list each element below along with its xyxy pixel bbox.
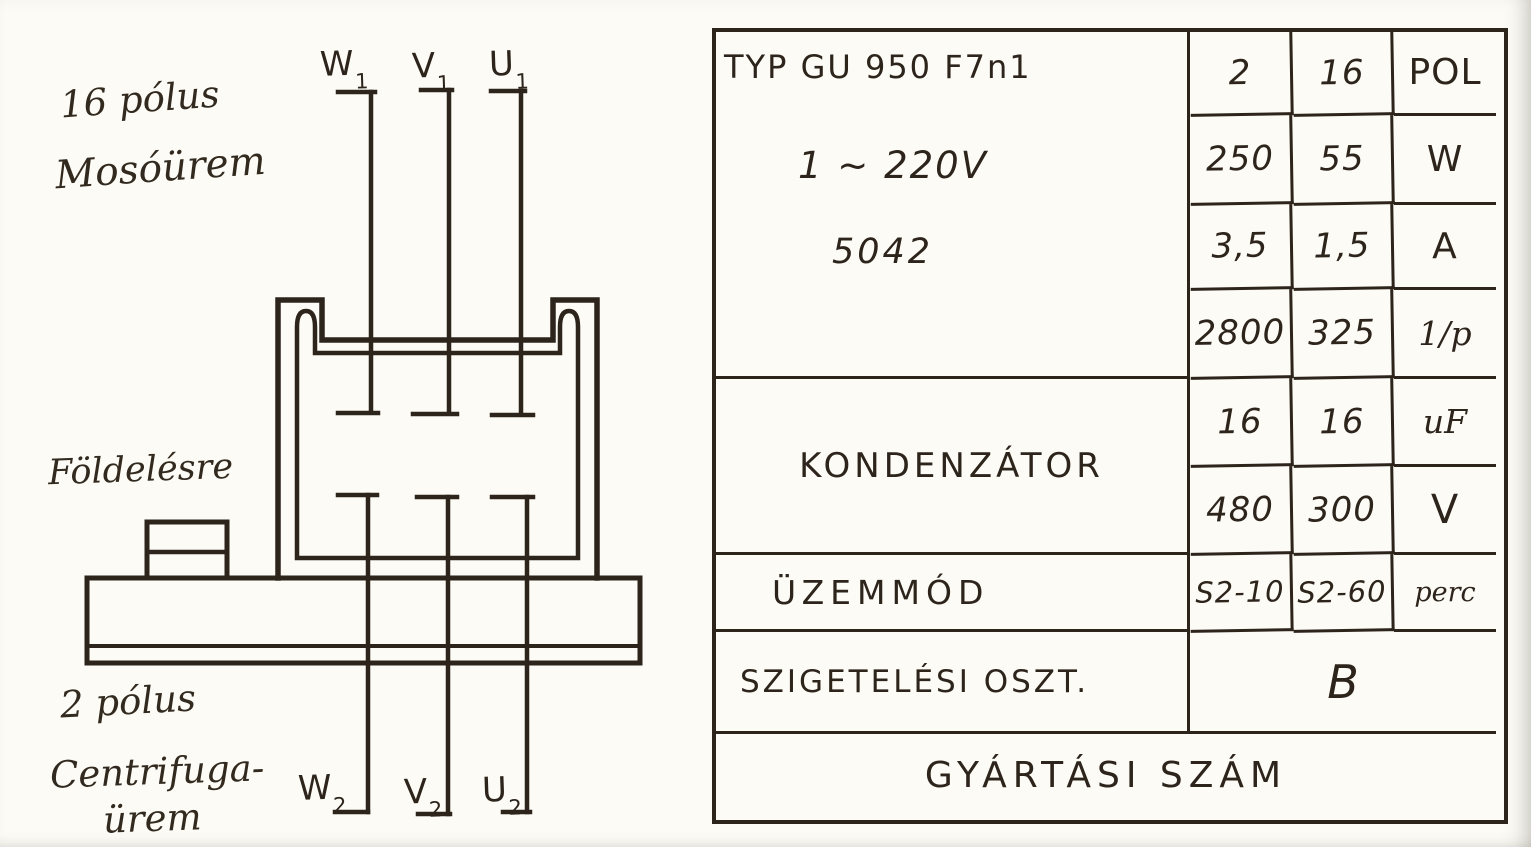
cell-capv-16p: 300 [1292,466,1395,556]
lead-v1 [413,90,457,414]
type-cell: TYP GU 950 F7n1 1 ~ 220V 5042 [716,32,1190,379]
cell-duty-16p: S2-60 [1292,554,1394,633]
cell-capv-2p: 480 [1189,466,1294,556]
cell-unit-w: W [1394,116,1496,205]
cell-unit-rpm: 1/p [1394,290,1496,379]
cell-speed-16p: 325 [1292,289,1395,380]
scanned-motor-datasheet: W1 V1 U1 W2 V2 U2 16 pólus Mosóürem Föld… [0,0,1531,847]
cell-current-2p: 3,5 [1189,204,1293,291]
cell-cap-2p: 16 [1189,378,1294,468]
lead-w2 [335,495,377,812]
cell-cap-16p: 16 [1292,378,1395,468]
cell-unit-uf: uF [1394,379,1496,467]
type-designation: TYP GU 950 F7n1 [724,48,1032,86]
cell-duty-2p: S2-10 [1189,554,1293,633]
cell-current-16p: 1,5 [1292,204,1394,291]
lead-u2 [492,497,533,812]
voltage-rating: 1 ~ 220V [798,144,988,187]
cell-unit-perc: perc [1394,555,1496,632]
cell-unit-pol: POL [1394,32,1496,116]
serial-number: 5042 [832,232,933,272]
uzemmod-label: ÜZEMMÓD [716,555,1190,632]
cell-unit-a: A [1394,205,1496,290]
terminal-label-w1: W1 [319,43,367,88]
cell-power-2p: 250 [1189,115,1294,206]
kondenzator-label: KONDENZÁTOR [716,379,1190,555]
lead-v2 [417,497,457,814]
terminal-label-u1: U1 [488,43,528,88]
cell-speed-2p: 2800 [1189,289,1294,380]
base-plate [87,578,640,663]
annotation-2-polus: 2 pólus [59,676,197,726]
terminal-label-w2: W2 [297,767,345,812]
terminal-box-inner [297,311,578,558]
spec-table: TYP GU 950 F7n1 1 ~ 220V 5042 2 16 POL 2… [712,28,1508,824]
szigetelesi-value: B [1190,632,1496,734]
szigetelesi-label: SZIGETELÉSI OSZT. [716,632,1190,734]
cell-power-16p: 55 [1292,115,1395,206]
lead-w1 [338,92,378,413]
cell-poles-2: 2 [1189,31,1293,117]
terminal-label-v2: V2 [403,771,441,816]
terminal-box-outer [278,300,597,578]
gyartasi-label: GYÁRTÁSI SZÁM [716,734,1496,816]
annotation-uzem: ürem [102,795,202,841]
cell-poles-16: 16 [1292,31,1394,117]
cell-unit-v: V [1394,467,1496,555]
annotation-foldelesre: Földelésre [47,447,233,493]
lead-u1 [491,91,533,415]
annotation-centrifuga: Centrifuga- [49,746,265,796]
terminal-label-v1: V1 [411,45,449,90]
terminal-label-u2: U2 [481,769,521,814]
